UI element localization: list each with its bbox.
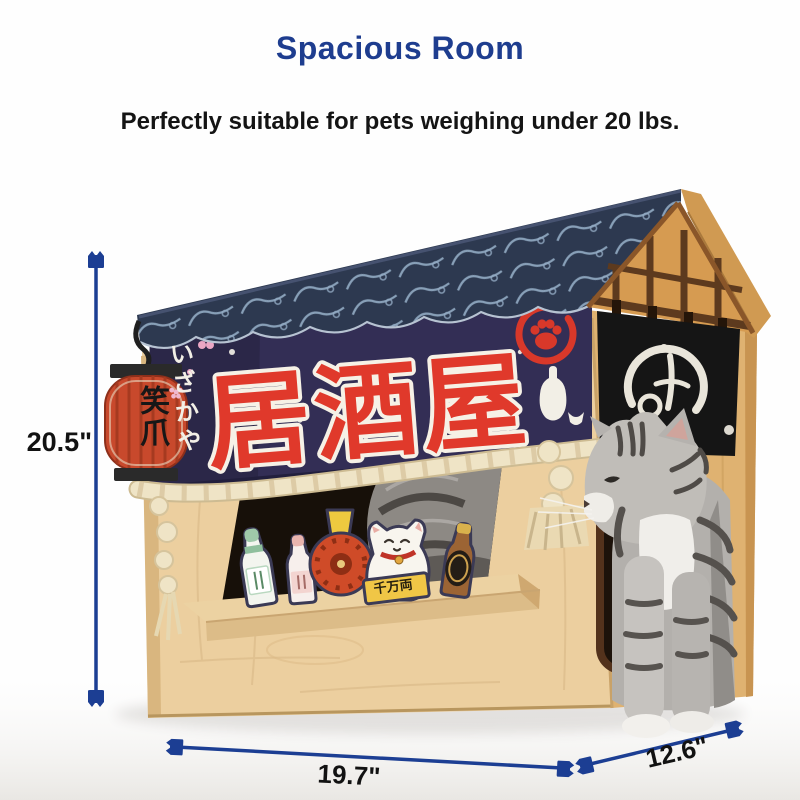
height-dimension-label: 20.5" <box>10 427 92 458</box>
page-subtitle: Perfectly suitable for pets weighing und… <box>0 108 800 136</box>
lantern-text: 笑爪 <box>129 385 173 471</box>
page-title: Spacious Room <box>0 30 800 67</box>
product-infographic: 居酒屋 <box>0 0 800 800</box>
